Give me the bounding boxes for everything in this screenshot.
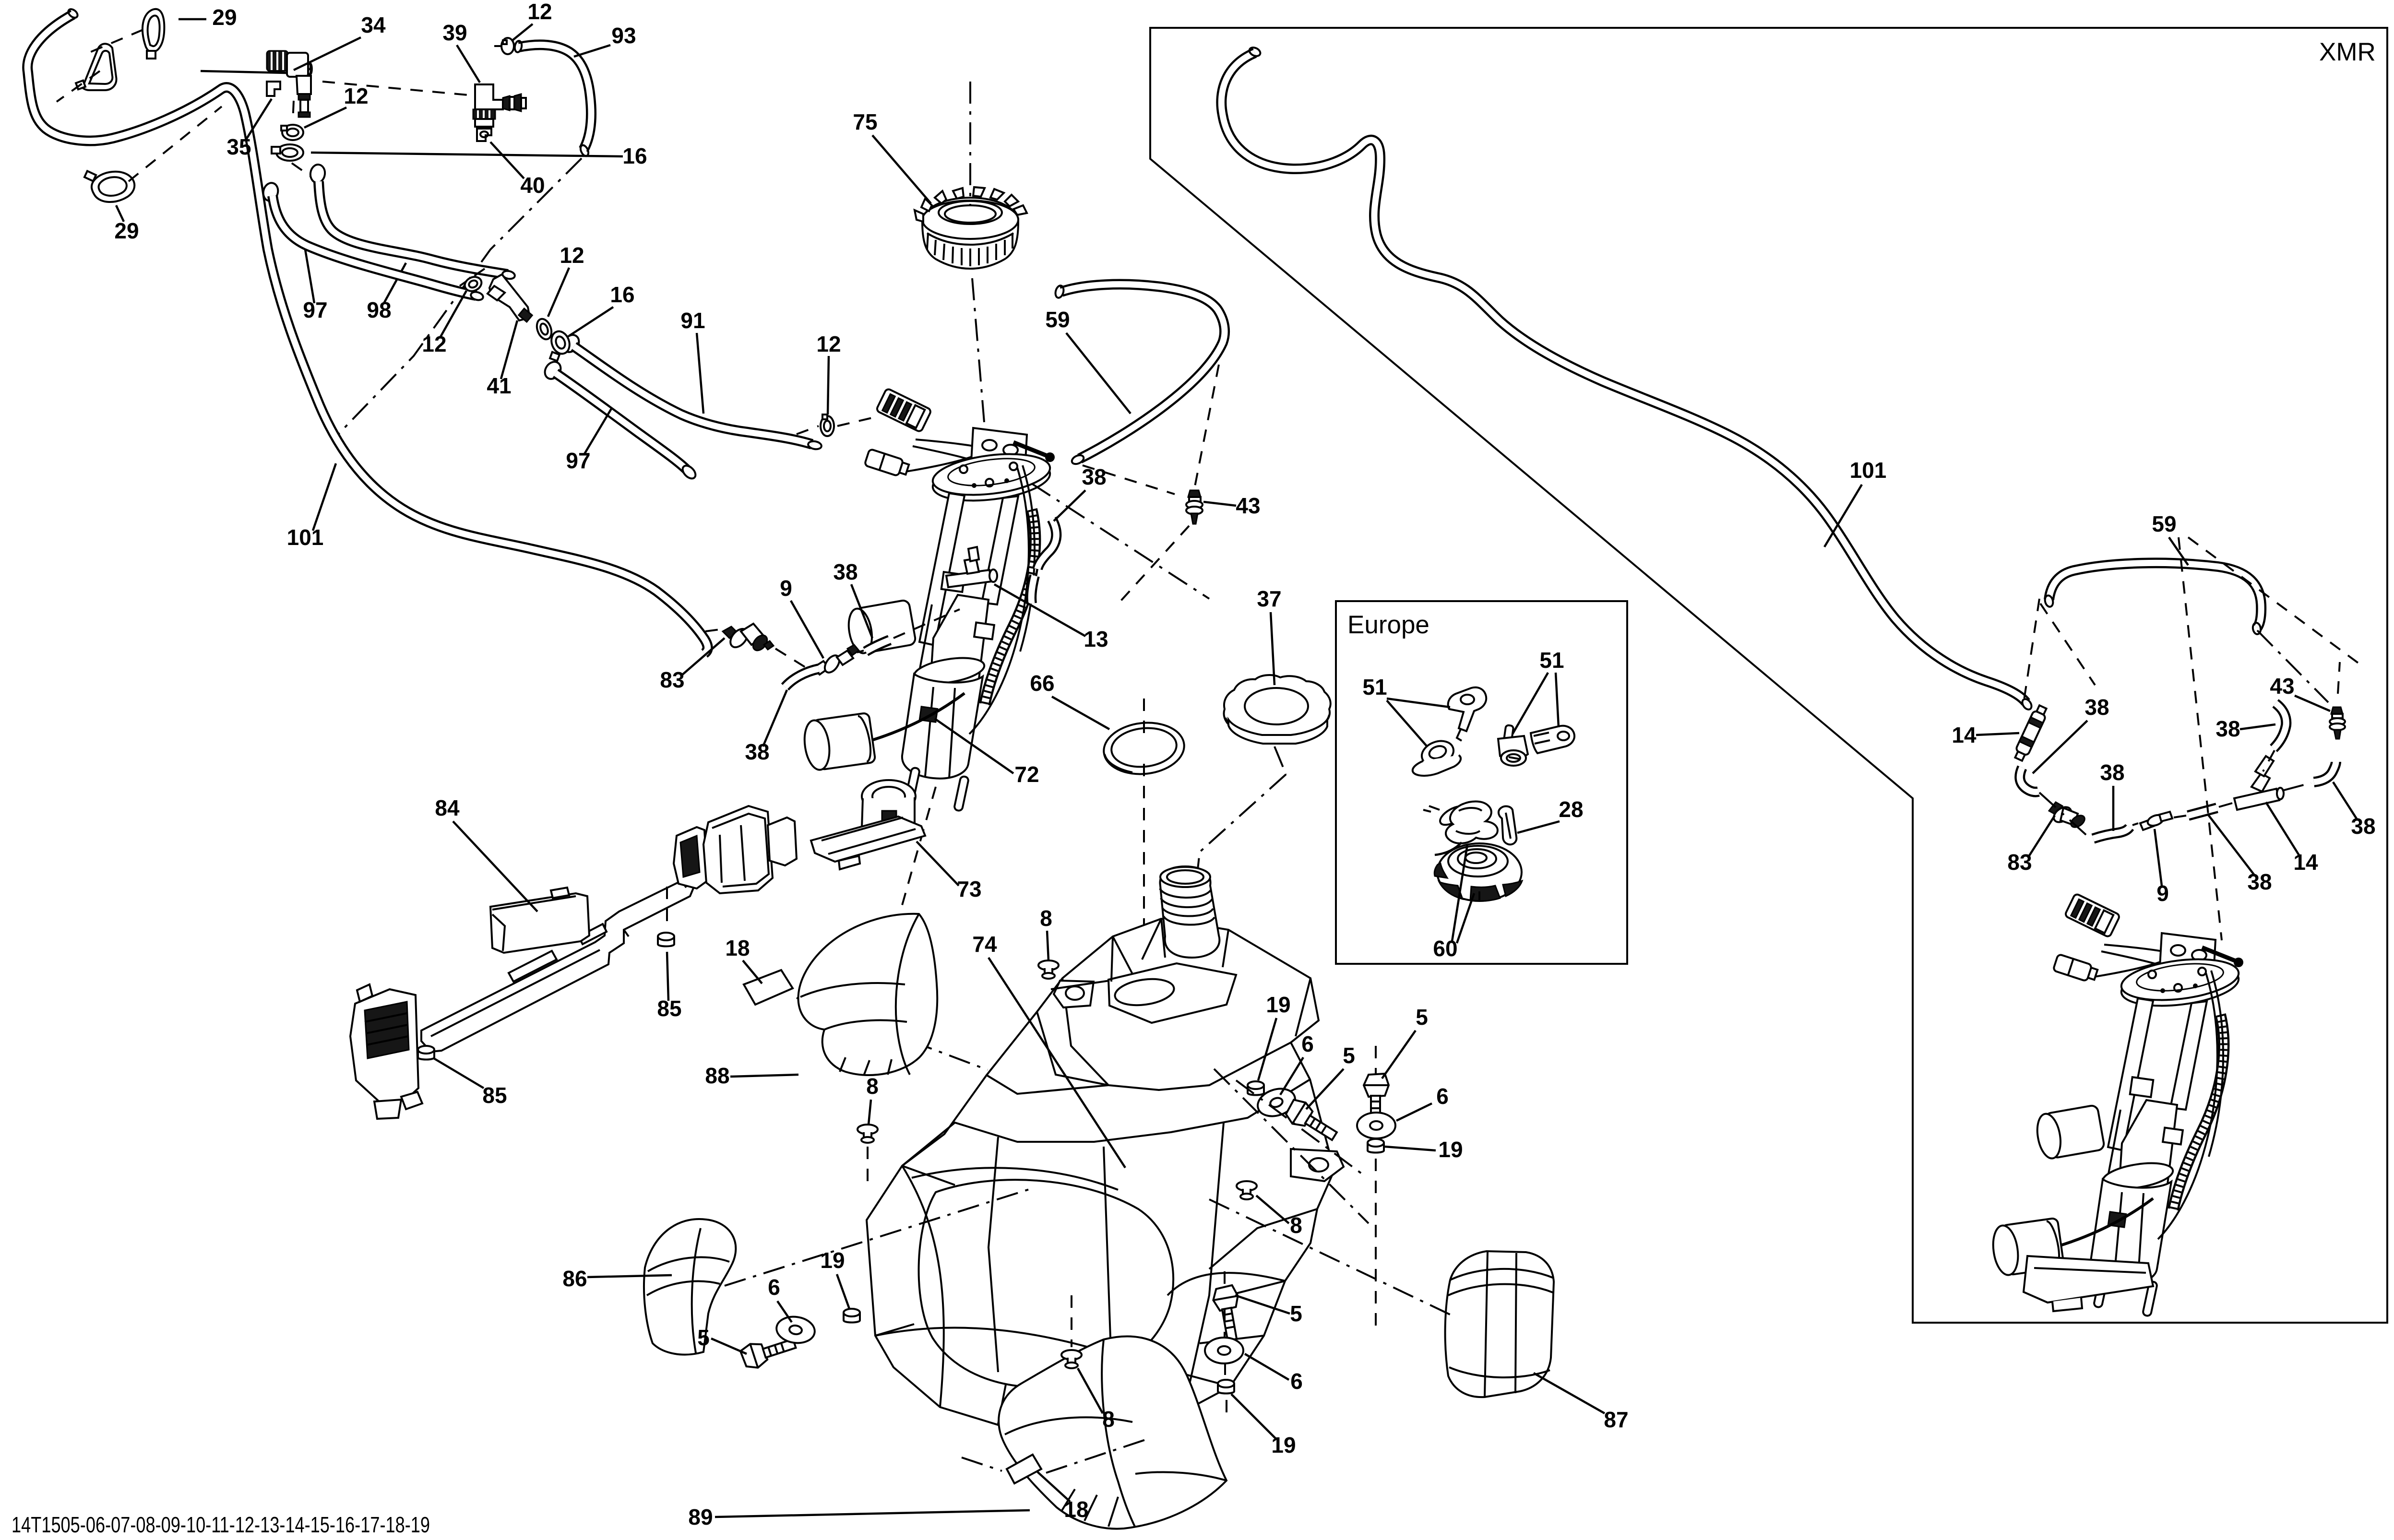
svg-text:38: 38 bbox=[2100, 760, 2124, 785]
svg-text:60: 60 bbox=[1433, 936, 1457, 961]
svg-text:43: 43 bbox=[2270, 674, 2294, 699]
svg-text:38: 38 bbox=[833, 559, 858, 584]
svg-text:37: 37 bbox=[1257, 586, 1281, 611]
svg-text:88: 88 bbox=[705, 1063, 729, 1088]
svg-text:8: 8 bbox=[866, 1074, 879, 1099]
svg-text:12: 12 bbox=[422, 332, 446, 356]
svg-text:5: 5 bbox=[1343, 1043, 1355, 1068]
svg-text:9: 9 bbox=[2156, 881, 2169, 906]
svg-text:19: 19 bbox=[1271, 1433, 1296, 1457]
svg-text:91: 91 bbox=[680, 308, 705, 333]
svg-text:5: 5 bbox=[697, 1325, 710, 1350]
svg-text:38: 38 bbox=[2084, 695, 2109, 720]
svg-text:18: 18 bbox=[725, 936, 750, 960]
svg-text:16: 16 bbox=[610, 282, 634, 307]
svg-text:6: 6 bbox=[1290, 1369, 1303, 1394]
svg-text:9: 9 bbox=[780, 576, 792, 601]
svg-text:101: 101 bbox=[1850, 458, 1887, 483]
svg-text:72: 72 bbox=[1014, 762, 1039, 787]
svg-text:XMR: XMR bbox=[2319, 38, 2376, 66]
svg-text:34: 34 bbox=[361, 12, 386, 37]
svg-text:8: 8 bbox=[1290, 1213, 1302, 1238]
svg-text:19: 19 bbox=[1266, 992, 1290, 1017]
svg-text:93: 93 bbox=[611, 23, 636, 48]
svg-text:14: 14 bbox=[1952, 723, 1977, 747]
svg-text:38: 38 bbox=[2247, 869, 2272, 894]
svg-text:28: 28 bbox=[1559, 797, 1583, 822]
svg-text:85: 85 bbox=[482, 1083, 507, 1108]
svg-text:83: 83 bbox=[660, 667, 684, 692]
svg-text:13: 13 bbox=[1084, 627, 1108, 652]
svg-text:38: 38 bbox=[1082, 464, 1106, 489]
svg-text:16: 16 bbox=[622, 143, 647, 168]
svg-text:40: 40 bbox=[520, 173, 545, 198]
svg-text:51: 51 bbox=[1362, 675, 1387, 699]
svg-text:5: 5 bbox=[1416, 1005, 1428, 1030]
svg-text:41: 41 bbox=[487, 373, 511, 398]
svg-text:73: 73 bbox=[957, 877, 981, 901]
svg-text:83: 83 bbox=[2007, 850, 2032, 875]
svg-text:66: 66 bbox=[1030, 671, 1054, 696]
svg-text:29: 29 bbox=[212, 5, 237, 30]
svg-text:12: 12 bbox=[527, 0, 552, 24]
svg-text:97: 97 bbox=[303, 297, 327, 322]
svg-text:29: 29 bbox=[114, 218, 139, 243]
svg-text:19: 19 bbox=[1438, 1137, 1463, 1162]
svg-text:86: 86 bbox=[562, 1266, 587, 1291]
svg-text:75: 75 bbox=[853, 109, 877, 134]
svg-text:59: 59 bbox=[1045, 307, 1070, 332]
svg-text:87: 87 bbox=[1604, 1407, 1628, 1432]
svg-text:12: 12 bbox=[816, 332, 841, 356]
svg-text:Europe: Europe bbox=[1347, 611, 1429, 639]
svg-text:39: 39 bbox=[442, 20, 467, 45]
svg-text:12: 12 bbox=[344, 83, 368, 108]
svg-text:6: 6 bbox=[1301, 1031, 1314, 1056]
svg-text:59: 59 bbox=[2152, 511, 2176, 536]
svg-text:6: 6 bbox=[768, 1275, 780, 1300]
svg-text:12: 12 bbox=[560, 243, 584, 268]
svg-text:5: 5 bbox=[1290, 1301, 1302, 1326]
svg-text:84: 84 bbox=[435, 795, 460, 820]
svg-text:14T1505-06-07-08-09-10-11-12-1: 14T1505-06-07-08-09-10-11-12-13-14-15-16… bbox=[12, 1512, 430, 1537]
svg-text:8: 8 bbox=[1102, 1407, 1115, 1432]
svg-text:98: 98 bbox=[367, 297, 391, 322]
svg-text:43: 43 bbox=[1236, 493, 1260, 518]
svg-text:74: 74 bbox=[972, 932, 997, 957]
svg-text:101: 101 bbox=[287, 525, 324, 550]
svg-text:8: 8 bbox=[1040, 906, 1052, 931]
svg-text:38: 38 bbox=[745, 739, 769, 764]
svg-text:6: 6 bbox=[1436, 1084, 1449, 1109]
svg-text:89: 89 bbox=[688, 1504, 713, 1529]
svg-text:38: 38 bbox=[2215, 716, 2240, 741]
svg-text:51: 51 bbox=[1539, 648, 1564, 673]
